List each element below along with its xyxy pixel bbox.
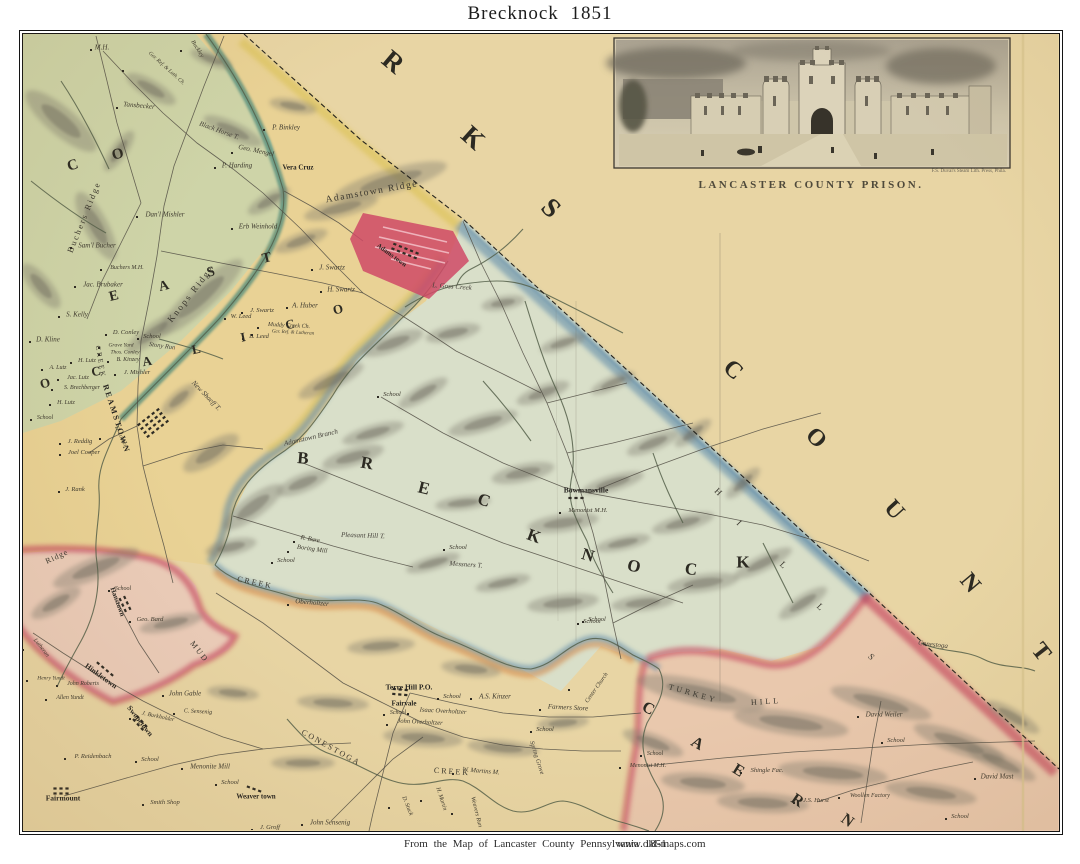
prison-credit: F.S. Duval's Steam Lith. Press, Phila.: [800, 169, 1006, 174]
prison-engraving: [606, 38, 1010, 168]
map-canvas: [23, 34, 1059, 831]
map-frame: [22, 33, 1060, 832]
footer-url: www.old-maps.com: [617, 838, 706, 850]
prison-caption: LANCASTER COUNTY PRISON.: [613, 179, 1009, 191]
screenshot-root: Brecknock 1851: [0, 0, 1080, 864]
map-title: Brecknock 1851: [0, 3, 1080, 25]
